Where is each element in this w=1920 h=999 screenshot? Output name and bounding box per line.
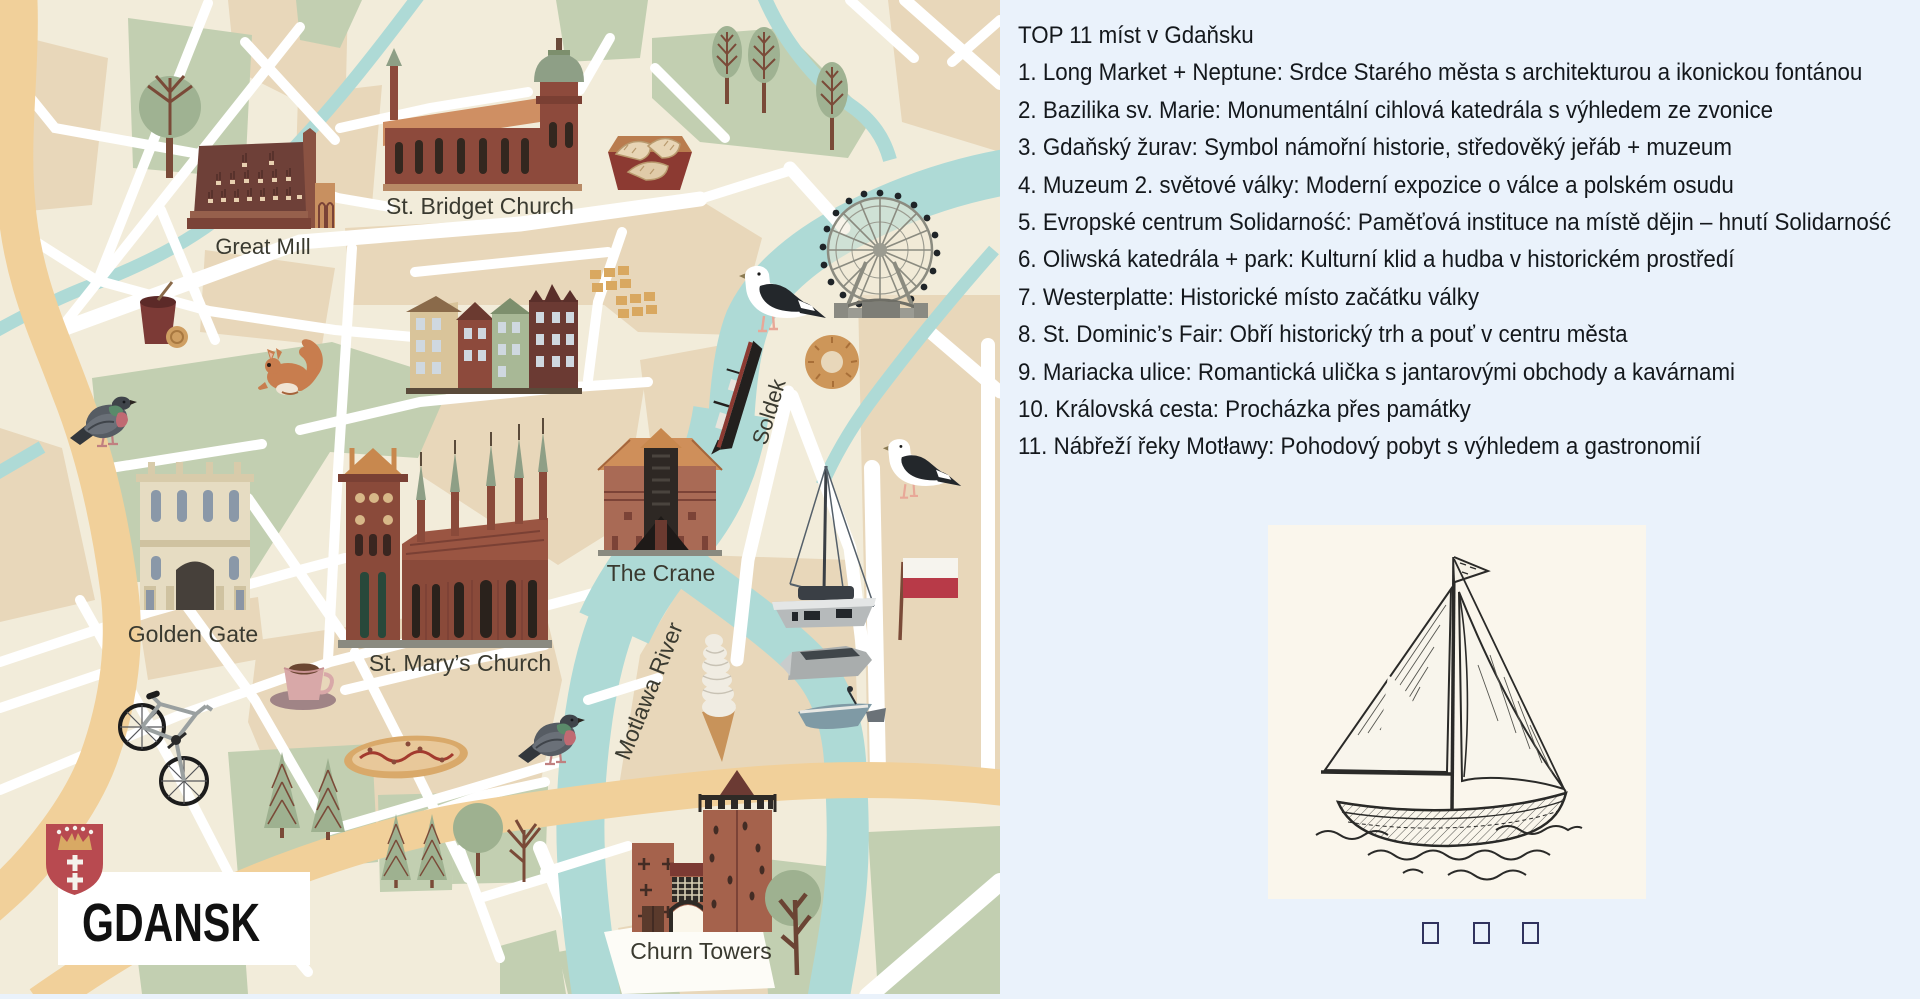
svg-text:St. Bridget Church: St. Bridget Church (386, 193, 574, 219)
svg-text:Golden Gate: Golden Gate (128, 621, 258, 647)
svg-text:Churn Towers: Churn Towers (630, 938, 771, 964)
svg-text:The Crane: The Crane (607, 560, 716, 586)
svg-text:GDANSK: GDANSK (82, 893, 260, 953)
svg-text:Great Mıll: Great Mıll (215, 234, 310, 259)
svg-text:St. Mary’s Church: St. Mary’s Church (369, 650, 551, 676)
